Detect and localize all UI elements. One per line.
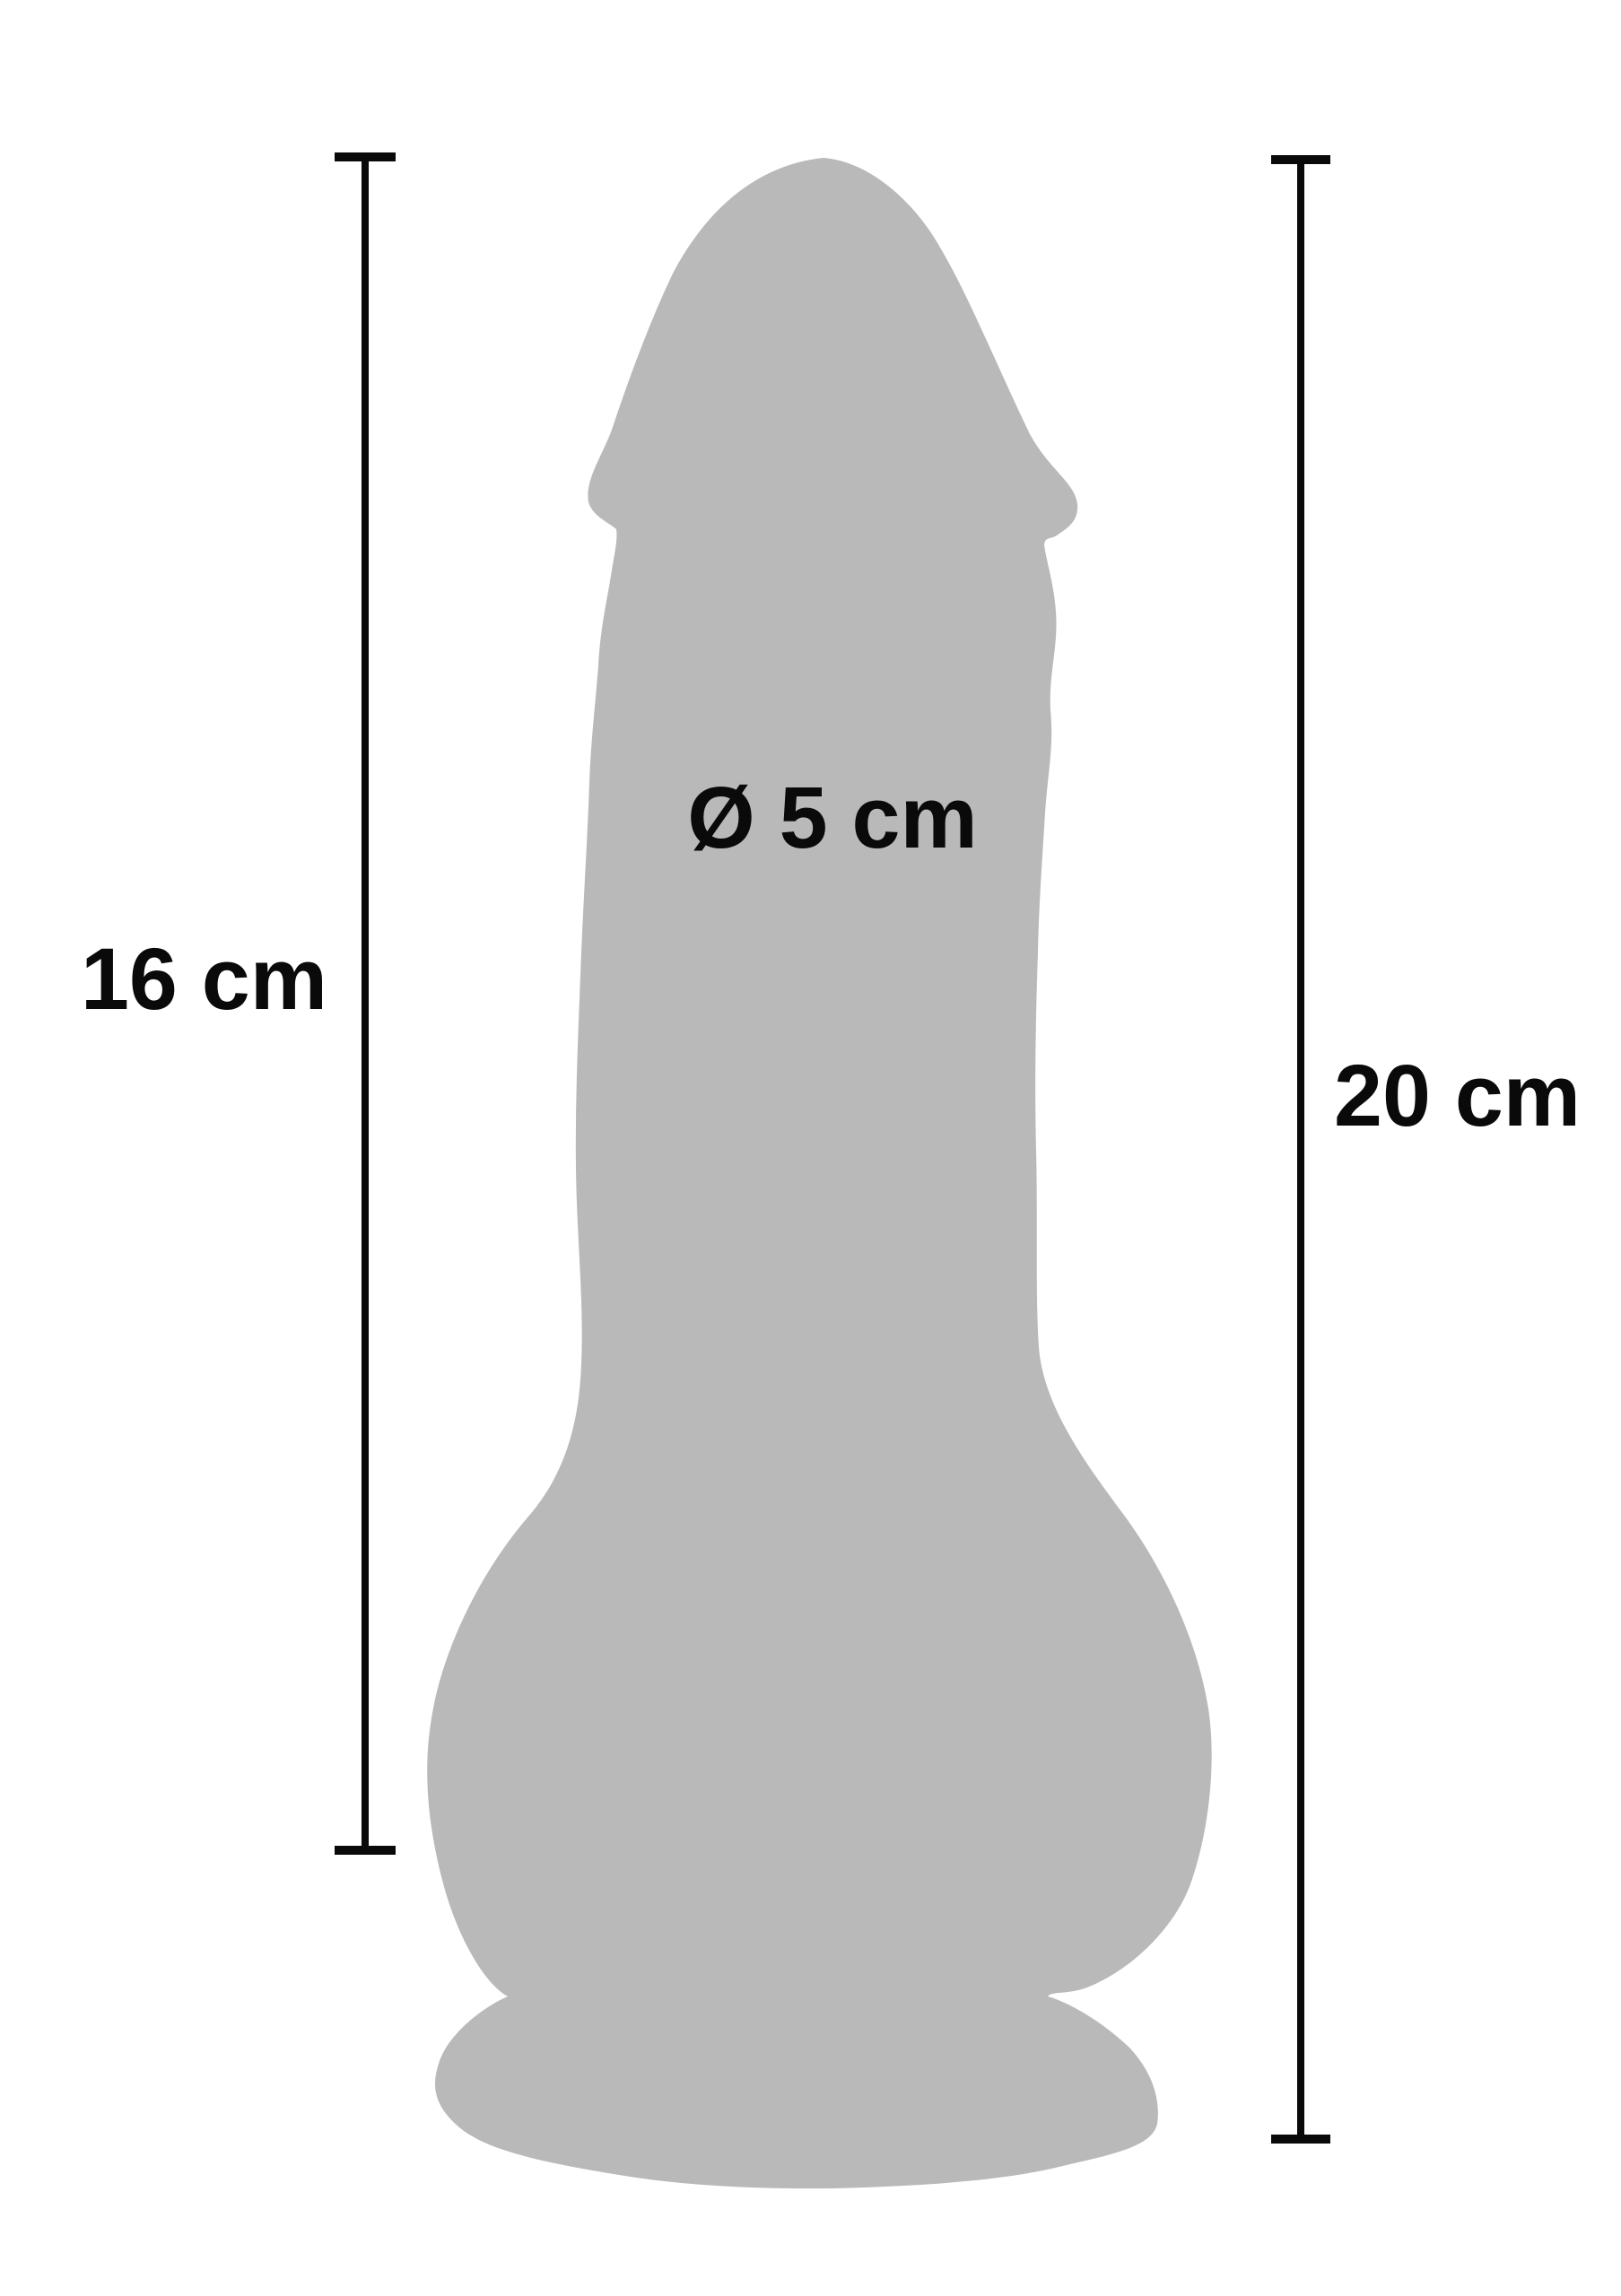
product-silhouette (427, 158, 1211, 2188)
dimension-line-total-length (1271, 157, 1330, 2142)
label-total-length: 20 cm (1334, 1052, 1581, 1139)
dimension-line-insertable-length (335, 154, 396, 1853)
diagram-graphic (0, 0, 1621, 2296)
product-dimension-diagram: 16 cm Ø 5 cm 20 cm (0, 0, 1621, 2296)
label-insertable-length: 16 cm (36, 935, 327, 1022)
label-diameter: Ø 5 cm (653, 774, 1012, 861)
